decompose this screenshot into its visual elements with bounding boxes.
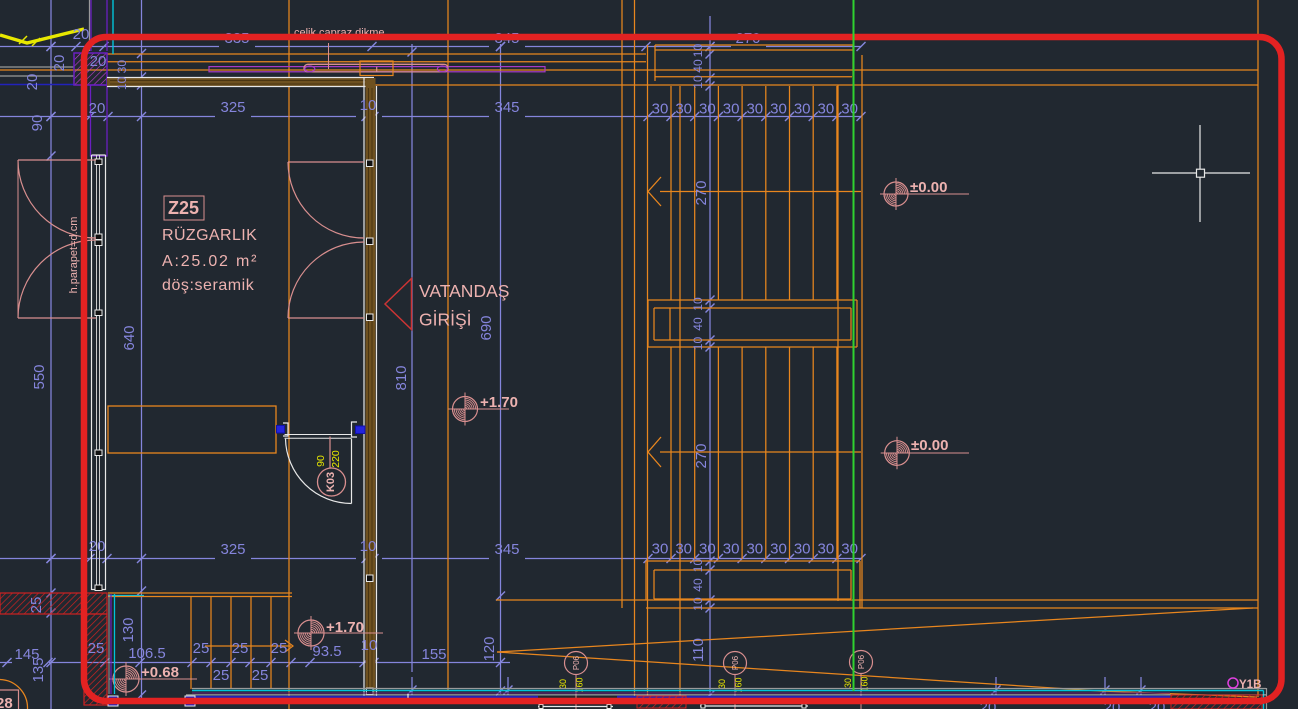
svg-text:30: 30 [723, 541, 740, 558]
svg-text:±0.00: ±0.00 [910, 179, 947, 196]
svg-text:130: 130 [120, 617, 137, 642]
svg-text:10: 10 [360, 97, 377, 114]
svg-text:döş:seramik: döş:seramik [162, 277, 255, 294]
svg-text:20: 20 [73, 26, 90, 43]
svg-text:30: 30 [675, 541, 692, 558]
svg-text:550: 550 [31, 364, 48, 389]
svg-text:30: 30 [746, 541, 763, 558]
svg-text:25: 25 [232, 640, 249, 657]
svg-text:30: 30 [794, 101, 811, 118]
svg-text:+1.70: +1.70 [480, 394, 518, 411]
svg-text:25: 25 [271, 640, 288, 657]
svg-text:25: 25 [193, 640, 210, 657]
svg-text:25: 25 [88, 640, 105, 657]
svg-text:30: 30 [746, 101, 763, 118]
svg-text:10: 10 [691, 337, 705, 351]
svg-text:30: 30 [699, 541, 716, 558]
svg-text:Z25: Z25 [168, 198, 199, 218]
svg-text:P06: P06 [857, 654, 866, 669]
svg-text:K03: K03 [325, 472, 337, 492]
svg-text:+0.68: +0.68 [141, 664, 179, 681]
svg-text:+1.70: +1.70 [326, 619, 364, 636]
svg-text:20: 20 [24, 74, 41, 91]
svg-text:640: 640 [121, 325, 138, 350]
svg-text:P06: P06 [731, 655, 740, 670]
svg-text:110: 110 [690, 638, 707, 662]
svg-text:270: 270 [693, 443, 710, 468]
svg-text:A:25.02 m²: A:25.02 m² [162, 253, 258, 270]
svg-text:GİRİŞİ: GİRİŞİ [419, 309, 472, 329]
svg-text:345: 345 [494, 99, 519, 116]
svg-text:20: 20 [89, 100, 106, 117]
svg-text:30: 30 [843, 678, 853, 688]
svg-text:270: 270 [693, 180, 710, 205]
svg-text:345: 345 [494, 541, 519, 558]
svg-text:90: 90 [315, 455, 327, 467]
svg-text:10: 10 [691, 75, 705, 89]
svg-text:30: 30 [675, 101, 692, 118]
svg-text:90: 90 [29, 115, 46, 132]
svg-text:30: 30 [794, 541, 811, 558]
svg-text:30: 30 [717, 679, 727, 689]
svg-text:106.5: 106.5 [128, 645, 166, 662]
svg-text:10 30: 10 30 [115, 60, 129, 90]
svg-text:325: 325 [220, 541, 245, 558]
svg-text:25: 25 [252, 667, 269, 684]
svg-text:145: 145 [14, 646, 39, 663]
svg-text:155: 155 [421, 646, 446, 663]
svg-text:30: 30 [723, 101, 740, 118]
svg-text:810: 810 [393, 365, 410, 390]
svg-text:160: 160 [860, 676, 870, 691]
svg-text:10: 10 [691, 297, 705, 311]
svg-text:25: 25 [213, 667, 230, 684]
svg-text:325: 325 [220, 99, 245, 116]
svg-text:30: 30 [770, 101, 787, 118]
svg-text:10: 10 [691, 44, 705, 58]
svg-text:30: 30 [841, 101, 858, 118]
svg-text:220: 220 [330, 450, 342, 468]
svg-text:30: 30 [770, 541, 787, 558]
svg-text:VATANDAŞ: VATANDAŞ [419, 281, 509, 301]
svg-text:P06: P06 [572, 655, 581, 670]
svg-text:690: 690 [478, 315, 495, 340]
svg-text:25: 25 [28, 597, 45, 614]
svg-text:30: 30 [558, 679, 568, 689]
svg-text:±0.00: ±0.00 [911, 437, 948, 454]
svg-text:30: 30 [699, 101, 716, 118]
svg-text:10: 10 [360, 538, 377, 555]
svg-text:30: 30 [841, 541, 858, 558]
svg-text:20: 20 [90, 53, 107, 70]
svg-text:28: 28 [0, 695, 13, 709]
svg-text:h.parapet=d.cm: h.parapet=d.cm [68, 217, 80, 294]
svg-text:120: 120 [481, 636, 498, 661]
svg-text:93.5: 93.5 [312, 643, 341, 660]
svg-text:20: 20 [51, 55, 68, 72]
svg-text:40: 40 [691, 317, 705, 331]
svg-text:30: 30 [652, 541, 669, 558]
svg-text:10: 10 [691, 559, 705, 573]
svg-text:RÜZGARLIK: RÜZGARLIK [162, 226, 257, 244]
svg-text:40: 40 [691, 59, 705, 73]
svg-text:10: 10 [691, 597, 705, 611]
svg-text:30: 30 [652, 101, 669, 118]
svg-text:20: 20 [89, 538, 106, 555]
svg-text:40: 40 [691, 578, 705, 592]
svg-text:10: 10 [361, 637, 378, 654]
svg-text:Y1B: Y1B [1239, 679, 1261, 691]
svg-text:30: 30 [818, 101, 835, 118]
svg-text:30: 30 [818, 541, 835, 558]
